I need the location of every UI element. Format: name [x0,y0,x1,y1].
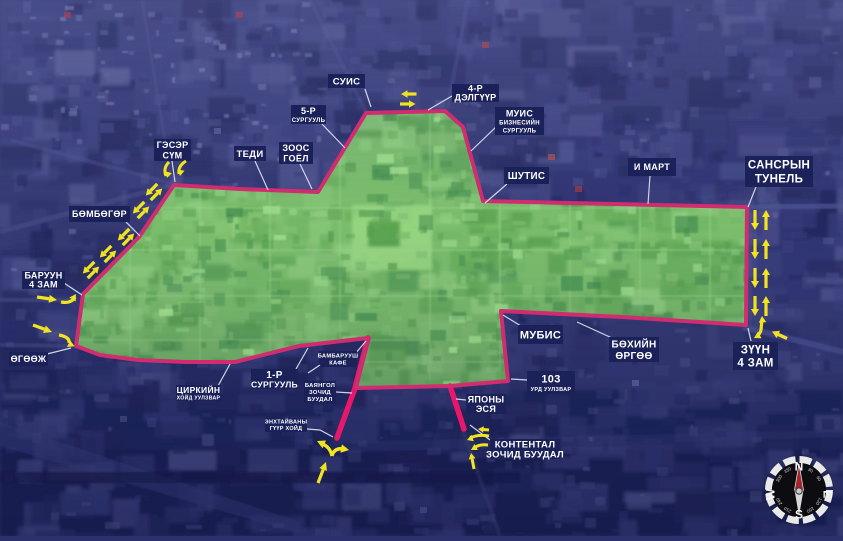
svg-text:СУРГУУЛЬ: СУРГУУЛЬ [292,118,326,124]
svg-text:СУИС: СУИС [333,76,361,87]
svg-text:И МАРТ: И МАРТ [634,162,670,172]
svg-text:СҮМ: СҮМ [163,150,183,160]
svg-text:ГҮҮР ХОЙД: ГҮҮР ХОЙД [270,424,303,432]
svg-text:4 ЗАМ: 4 ЗАМ [29,280,58,290]
svg-text:ЦИРКИЙН: ЦИРКИЙН [177,384,221,395]
svg-text:СУРГУУЛЬ: СУРГУУЛЬ [503,128,537,134]
svg-text:ГЭСЭР: ГЭСЭР [157,140,189,150]
svg-text:ГОЁЛ: ГОЁЛ [283,153,309,163]
svg-text:W: W [764,488,778,500]
svg-text:103: 103 [541,374,560,386]
svg-text:БӨХИЙН: БӨХИЙН [611,337,656,350]
svg-text:N: N [795,459,804,473]
svg-text:СУРГУУЛЬ: СУРГУУЛЬ [251,379,298,389]
svg-text:МУБИС: МУБИС [520,330,561,342]
svg-text:САНСРЫН: САНСРЫН [748,160,810,172]
svg-text:ЗҮҮН: ЗҮҮН [741,345,771,357]
svg-text:4 ЗАМ: 4 ЗАМ [737,358,773,370]
svg-text:ЭНХТАЙВАНЫ: ЭНХТАЙВАНЫ [265,418,308,426]
svg-text:E: E [821,490,835,498]
svg-text:МУИС: МУИС [506,109,533,119]
svg-text:ӨГӨӨЖ: ӨГӨӨЖ [11,354,47,364]
svg-text:ШУТИС: ШУТИС [508,171,546,182]
svg-text:БӨМБӨГӨР: БӨМБӨГӨР [72,209,127,219]
svg-text:ЭСЯ: ЭСЯ [476,404,496,414]
svg-text:ЗООС: ЗООС [282,143,309,153]
svg-text:ЗОЧИД: ЗОЧИД [309,390,332,396]
svg-text:БАМБАРУУШ: БАМБАРУУШ [318,354,359,360]
svg-text:ЯПОНЫ: ЯПОНЫ [468,394,505,404]
svg-text:ЗОЧИД БУУДАЛ: ЗОЧИД БУУДАЛ [486,449,564,460]
svg-text:ТЕДИ: ТЕДИ [237,149,264,160]
svg-text:БИЗНЕСИЙН: БИЗНЕСИЙН [499,119,540,127]
svg-text:ӨРГӨӨ: ӨРГӨӨ [615,351,652,362]
svg-text:ХОЙД УУЛЗВАР: ХОЙД УУЛЗВАР [177,394,221,402]
svg-text:УРД УУЛЗВАР: УРД УУЛЗВАР [531,387,572,393]
svg-text:ТУНЕЛЬ: ТУНЕЛЬ [755,174,803,186]
svg-text:БАЯНГОЛ: БАЯНГОЛ [305,383,335,389]
svg-text:5-Р: 5-Р [301,106,316,116]
svg-text:БУУДАЛ: БУУДАЛ [307,397,332,403]
svg-text:ДЭЛГҮҮР: ДЭЛГҮҮР [454,93,496,103]
svg-text:S: S [795,508,803,522]
svg-text:КАФЕ: КАФЕ [329,361,347,367]
